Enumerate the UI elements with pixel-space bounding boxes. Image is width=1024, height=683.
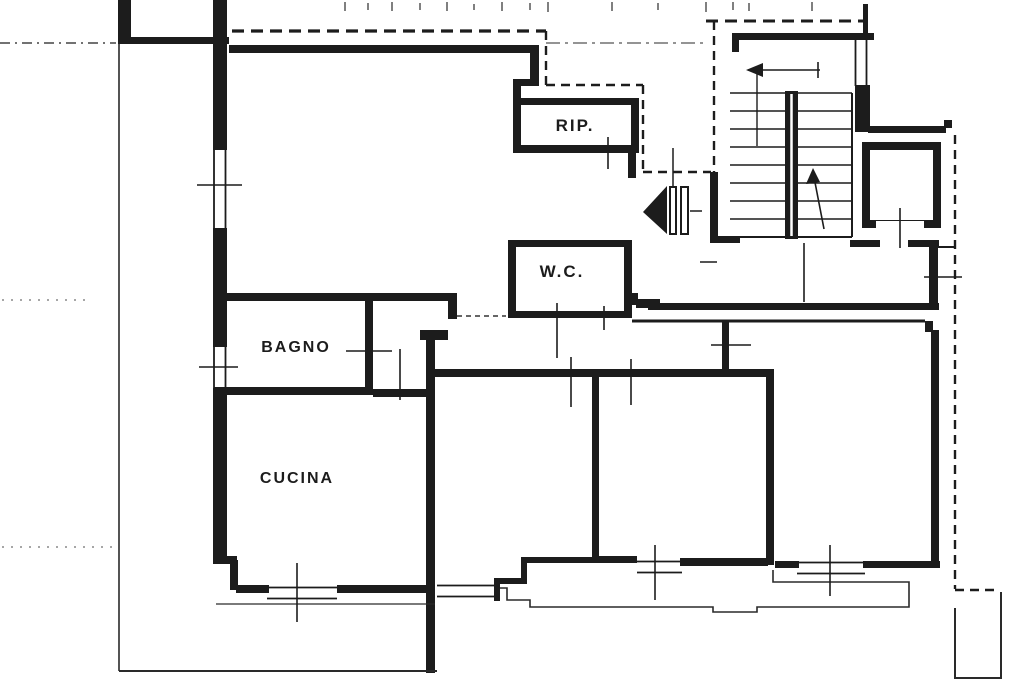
floor-plan-drawing: RIP. W.C. BAGNO CUCINA [0, 0, 1024, 683]
door-ticks [197, 137, 962, 622]
room-label-wc: W.C. [540, 262, 585, 281]
elevator-shaft-icon [862, 142, 941, 248]
room-label-rip: RIP. [556, 116, 595, 135]
window-left-upper [214, 148, 226, 230]
floor-plan-page: RIP. W.C. BAGNO CUCINA [0, 0, 1024, 683]
window-cucina [267, 588, 337, 599]
walls [118, 0, 952, 673]
window-room-b [637, 562, 682, 573]
balcony-outline-bottom [500, 570, 909, 612]
window-left-lower [214, 347, 226, 390]
room-a-bottom-wall [497, 560, 599, 601]
window-stairwell [856, 40, 867, 86]
entrance-door-icon [643, 148, 702, 234]
room-label-bagno: BAGNO [261, 339, 331, 356]
terrace-outline [119, 44, 437, 671]
window-room-a [437, 586, 497, 597]
room-label-cucina: CUCINA [260, 470, 334, 487]
window-room-c [797, 563, 865, 574]
top-edge-ruler-ticks [345, 2, 812, 12]
neighbor-structure-outline [955, 592, 1001, 678]
staircase [730, 62, 852, 239]
